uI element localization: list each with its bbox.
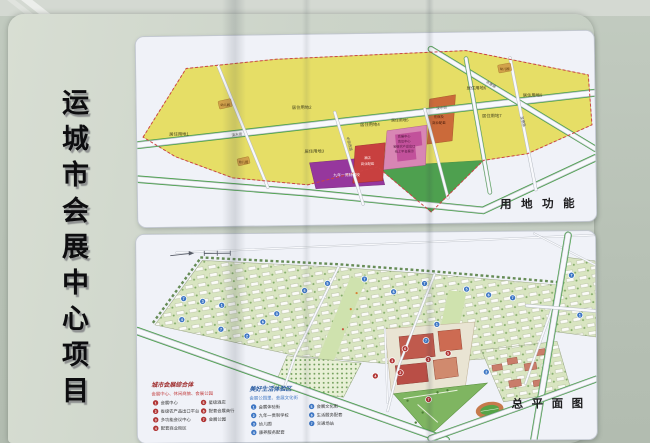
map-marker-number: 7 [183,297,185,301]
legend-num: 2 [253,414,255,418]
legend-num: 1 [155,401,157,405]
map-marker-number: 3 [391,359,393,363]
convention-label: 省级农产品出口 [393,143,415,148]
poster-photo: 运城市会展中心项目 [0,0,650,443]
legend-num: 4 [253,431,255,435]
legend-num: 5 [203,401,205,405]
site-plan-map: 7314726365767175677126153247 城市会展综合体 会展中… [136,231,597,443]
map-marker-number: 5 [466,287,468,291]
school-label: 九年一贯制学校 [333,172,360,177]
convention-label: 会展中心 [398,133,412,138]
lodging-label: 住宿及 [434,114,445,119]
map-marker-number: 5 [447,352,449,356]
zone-label: 居住用地5 [391,117,408,122]
kindergarten-label: 幼儿园 [500,66,510,71]
amenity-dot [350,308,352,310]
map-marker-number: 6 [262,320,264,324]
kindergarten-label: 幼儿园 [239,159,249,164]
legend-num: 6 [203,409,205,413]
convention-label: 会议中心 [398,138,412,143]
map-marker-number: 7 [363,277,365,281]
map-marker-number: 5 [327,282,329,286]
site-plan-panel-title: 总平面图 [512,396,592,411]
map-marker-number: 6 [404,347,406,351]
amenity-dot [342,328,344,330]
map-marker-number: 2 [399,371,401,375]
convention-hall [438,329,462,351]
map-marker-number: 3 [276,312,278,316]
legend-num: 5 [311,405,313,409]
map-marker-number: 4 [374,374,376,378]
map-marker-number: 1 [221,304,223,308]
map-marker-number: 1 [579,313,581,317]
legend-num: 3 [155,418,157,422]
amenity-dot [356,292,358,294]
legend-num: 2 [155,410,157,414]
map-marker-number: 7 [220,328,222,332]
project-title-vertical: 运城市会展中心项目 [54,88,93,440]
map-marker-number: 7 [570,274,572,278]
map-marker-number: 7 [512,296,514,300]
legend-num: 7 [203,418,205,422]
legend-num: 3 [253,422,255,426]
map-marker-number: 2 [246,334,248,338]
map-marker-number: 3 [202,300,204,304]
map-marker-number: 4 [181,318,183,322]
lodging-label: 商业配套 [432,120,446,125]
land-use-panel: 居住用地1 居住用地2 居住用地3 居住用地4 居住用地5 居住用地6 居住用地… [135,30,598,228]
legend-num: 1 [253,405,255,409]
kindergarten-label: 幼儿园 [220,102,230,107]
map-marker-number: 7 [424,282,426,286]
land-use-map: 居住用地1 居住用地2 居住用地3 居住用地4 居住用地5 居住用地6 居住用地… [136,31,597,227]
legend-num: 6 [311,413,313,417]
map-marker-number: 6 [488,293,490,297]
map-marker-number: 7 [425,339,427,343]
hotel-label: 商业配套 [361,161,375,166]
map-marker-number: 7 [428,398,430,402]
map-marker-number: 6 [304,289,306,293]
legend-num: 4 [155,427,157,431]
map-marker-number: 6 [393,290,395,294]
display-board: 运城市会展中心项目 [8,14,594,443]
convention-label: 线上平台展示 [395,148,414,153]
convention-hall [433,357,458,379]
hotel-label: 酒店 [364,155,371,160]
land-use-panel-title: 用地功能 [499,196,584,211]
site-plan-panel: 7314726365767175677126153247 城市会展综合体 会展中… [135,230,598,443]
map-marker-number: 1 [427,358,429,362]
map-marker-number: 1 [436,323,438,327]
map-marker-number: 2 [485,370,487,374]
legend-num: 7 [311,422,313,426]
